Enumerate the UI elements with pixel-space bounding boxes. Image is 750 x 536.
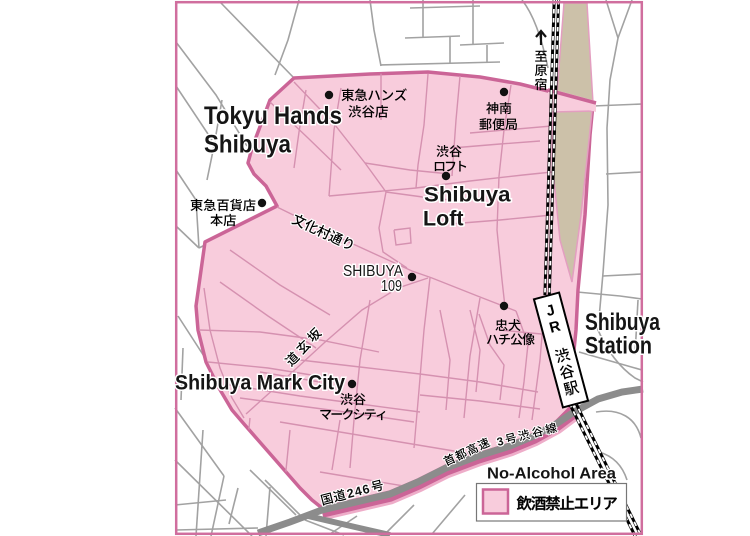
svg-text:Loft: Loft (423, 208, 464, 231)
svg-text:Station: Station (585, 333, 652, 360)
svg-text:Shibuya Mark City: Shibuya Mark City (175, 372, 345, 395)
svg-text:No-Alcohol Area: No-Alcohol Area (487, 466, 616, 483)
svg-text:Shibuya: Shibuya (204, 131, 292, 159)
svg-text:Shibuya: Shibuya (424, 184, 511, 207)
svg-text:Tokyu Hands: Tokyu Hands (204, 102, 342, 130)
svg-text:109: 109 (381, 278, 402, 295)
